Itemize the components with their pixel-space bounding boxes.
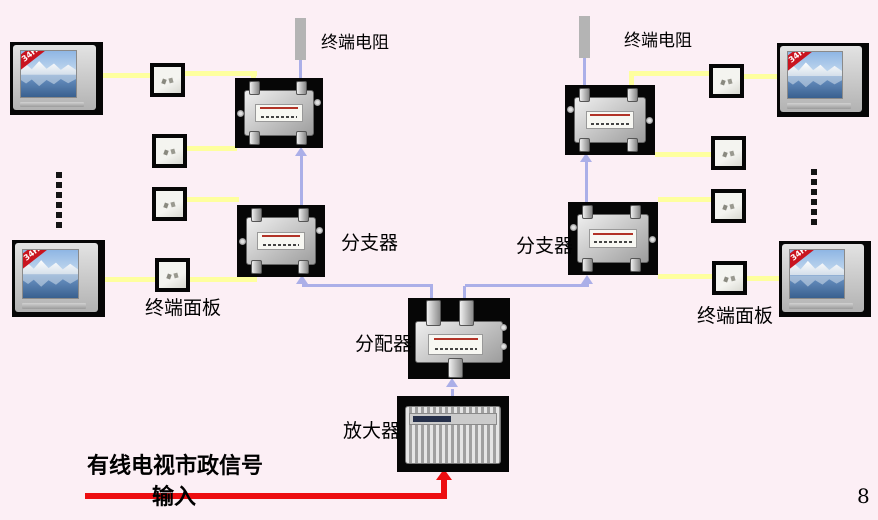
- tv-cabinet: 34H: [13, 45, 96, 110]
- branch-tap-right-upper: [565, 85, 655, 155]
- f-connector-icon: [298, 260, 309, 274]
- f-connector-icon: [579, 138, 590, 152]
- tv-screen: 34H: [789, 249, 845, 299]
- terminal-resistor-right: [579, 16, 590, 58]
- tv-top-right: 34H: [777, 43, 869, 117]
- cable-tv2-to-outlet4: [103, 277, 155, 282]
- trunk-tap-to-resistor-left: [299, 60, 302, 79]
- distributor: [408, 298, 510, 379]
- device-label: [428, 334, 483, 355]
- signal-input-line2: 输入: [152, 482, 263, 513]
- f-connector-icon: [627, 88, 638, 102]
- arrow-into-distributor-icon: [446, 378, 458, 387]
- f-connector-icon: [298, 208, 309, 222]
- f-connector-icon: [426, 300, 441, 326]
- mount-ear-icon: [314, 99, 321, 106]
- f-connector-icon: [579, 88, 590, 102]
- tv-cabinet: 34H: [782, 244, 864, 312]
- signal-input-line1: 有线电视市政信号: [87, 451, 263, 482]
- cable-outlet4-right-to-tv: [747, 276, 779, 281]
- device-label: [255, 104, 303, 122]
- tv-screen: 34H: [20, 50, 77, 98]
- label-terminal-resistor-right: 终端电阻: [624, 26, 692, 51]
- mount-ear-icon: [567, 106, 574, 113]
- label-branch-left: 分支器: [341, 228, 398, 255]
- mount-ear-icon: [239, 238, 246, 245]
- mountain-reflection: [20, 75, 77, 87]
- tv-control-strip: [20, 102, 85, 108]
- outlet-face: [154, 67, 181, 93]
- outlet-face: [156, 191, 183, 217]
- cable-outlet3-to-tap: [186, 197, 239, 202]
- outlet-face: [713, 68, 740, 94]
- f-connector-icon: [296, 131, 307, 145]
- tv-screen: 34H: [787, 51, 843, 99]
- wall-outlet-left-1: [150, 63, 185, 97]
- device-label: [257, 232, 305, 251]
- tv-control-strip: [22, 303, 87, 309]
- f-connector-icon: [582, 258, 593, 272]
- input-signal-riser: [441, 480, 447, 494]
- mountain-reflection: [22, 275, 79, 288]
- tv-control-strip: [789, 303, 853, 309]
- tv-top-left: 34H: [10, 42, 103, 115]
- wall-outlet-right-3: [711, 189, 746, 223]
- label-branch-right: 分支器: [516, 231, 573, 258]
- f-connector-icon: [251, 260, 262, 274]
- more-rooms-dots-left-icon: [56, 172, 62, 230]
- cable-outlet2-to-tap: [187, 146, 237, 151]
- device-label: [589, 229, 638, 248]
- wall-outlet-right-4: [712, 261, 747, 295]
- tv-cabinet: 34H: [780, 46, 862, 112]
- branch-tap-right-lower: [568, 202, 658, 275]
- trunk-tap-to-tap-right: [585, 162, 588, 203]
- amplifier: [397, 396, 509, 472]
- label-signal-input: 有线电视市政信号 输入: [87, 451, 263, 513]
- f-connector-icon: [459, 300, 474, 326]
- f-connector-icon: [251, 208, 262, 222]
- device-label: [586, 111, 635, 129]
- cable-outlet1-right-to-tv: [744, 74, 778, 79]
- f-connector-icon: [249, 131, 260, 145]
- trunk-tap-to-tap-left: [300, 156, 303, 206]
- f-connector-icon: [630, 258, 641, 272]
- f-connector-icon: [582, 205, 593, 219]
- trunk-tap-to-resistor-right: [583, 58, 586, 86]
- amplifier-label-strip: [413, 416, 451, 422]
- terminal-resistor-left: [295, 18, 306, 60]
- wall-outlet-left-4: [155, 258, 190, 292]
- branch-tap-left-lower: [237, 205, 325, 277]
- tv-bottom-right: 34H: [779, 241, 871, 317]
- mount-ear-icon: [500, 343, 507, 350]
- cable-outlet1-to-tap: [184, 71, 257, 76]
- mount-ear-icon: [570, 224, 577, 231]
- f-connector-icon: [296, 81, 307, 95]
- wall-outlet-right-2: [711, 136, 746, 170]
- outlet-face: [716, 265, 743, 291]
- cable-tv1-to-outlet1: [100, 73, 150, 78]
- cable-outlet4-to-tap: [189, 277, 257, 282]
- f-connector-icon: [627, 138, 638, 152]
- cable-tap-to-outlet1-right: [629, 71, 709, 76]
- tv-bottom-left: 34H: [12, 240, 105, 317]
- page-number: 8: [857, 484, 870, 508]
- label-terminal-panel-left: 终端面板: [145, 293, 221, 320]
- label-terminal-resistor-left: 终端电阻: [321, 28, 389, 53]
- mount-ear-icon: [316, 227, 323, 234]
- tv-screen: 34H: [22, 249, 79, 299]
- more-rooms-dots-right-icon: [811, 169, 817, 227]
- f-connector-icon: [249, 81, 260, 95]
- wall-outlet-left-2: [152, 134, 187, 168]
- mount-ear-icon: [237, 110, 244, 117]
- cable-tap-to-outlet2-right: [655, 152, 711, 157]
- cable-tv-network-diagram: 34H 34H 34H: [0, 0, 878, 520]
- f-connector-icon: [630, 205, 641, 219]
- label-distributor: 分配器: [355, 329, 412, 356]
- branch-tap-left-upper: [235, 78, 323, 148]
- outlet-face: [156, 138, 183, 164]
- label-terminal-panel-right: 终端面板: [697, 301, 773, 328]
- f-connector-icon: [448, 358, 463, 378]
- wall-outlet-left-3: [152, 187, 187, 221]
- mountain-reflection: [787, 76, 843, 88]
- tv-cabinet: 34H: [15, 243, 98, 312]
- trunk-distributor-to-left-tap: [302, 284, 433, 287]
- mount-ear-icon: [646, 117, 653, 124]
- mountain-reflection: [789, 275, 845, 287]
- mount-ear-icon: [649, 236, 656, 243]
- mount-ear-icon: [500, 324, 507, 331]
- arrow-up-left-riser-icon: [295, 147, 307, 156]
- wall-outlet-right-1: [709, 64, 744, 98]
- outlet-face: [715, 193, 742, 219]
- label-amplifier: 放大器: [343, 416, 400, 443]
- outlet-face: [715, 140, 742, 166]
- cable-tap-to-outlet3-right: [658, 197, 711, 202]
- outlet-face: [159, 262, 186, 288]
- cable-tap-to-outlet4-right: [658, 274, 712, 279]
- trunk-distributor-to-right-tap: [465, 284, 589, 287]
- tv-control-strip: [787, 103, 851, 109]
- arrow-into-right-tap-icon: [581, 275, 593, 284]
